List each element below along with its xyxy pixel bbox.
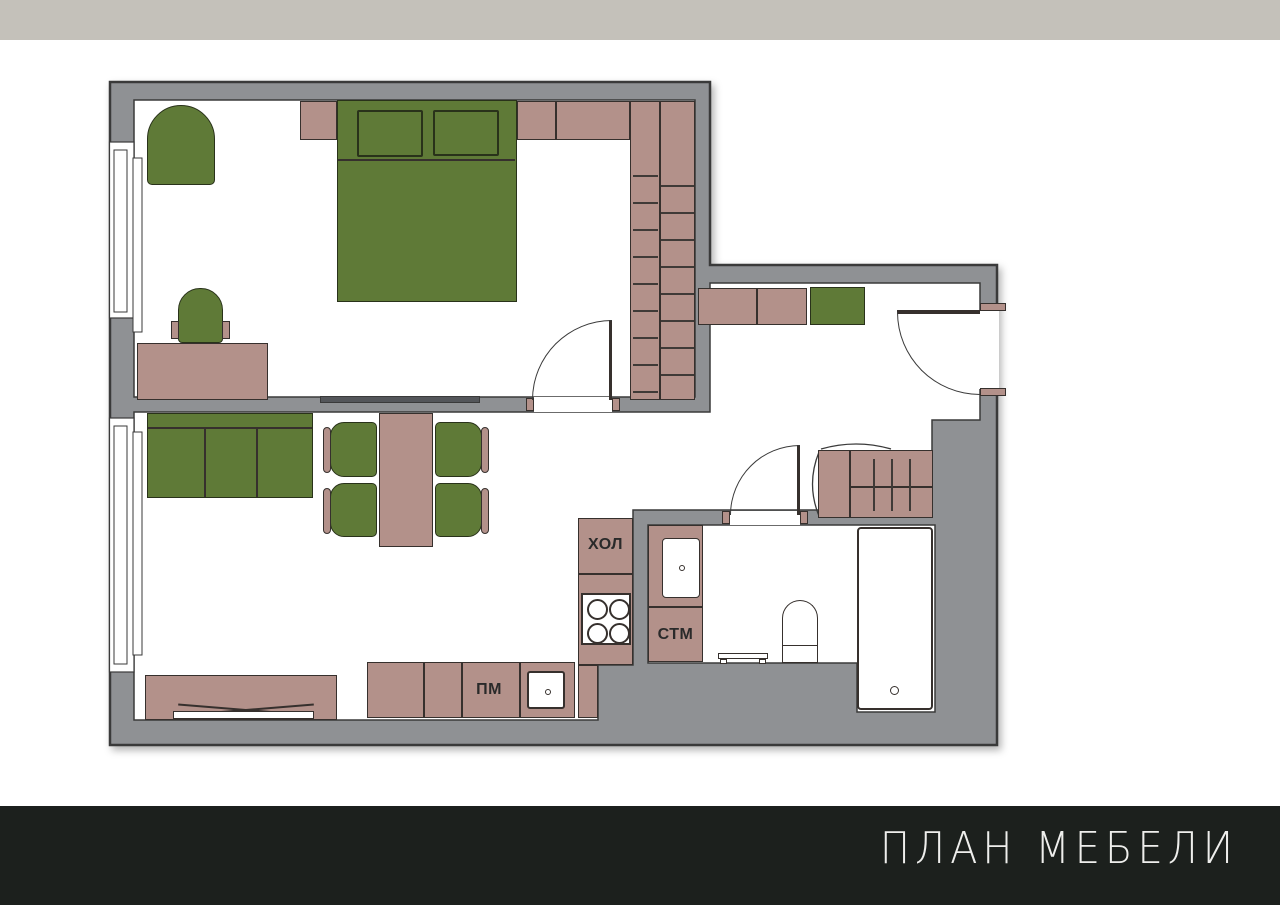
door-frame (612, 398, 620, 411)
hob (581, 593, 631, 645)
hall-bench (810, 287, 865, 325)
stool-foot (759, 659, 766, 664)
counter-divider (519, 663, 521, 717)
hall-wardrobe (818, 450, 933, 518)
washing-machine-text: СТМ (658, 626, 694, 644)
pillow (357, 110, 423, 157)
desk (137, 343, 268, 400)
desk-chair (178, 288, 223, 343)
dining-chair (330, 483, 377, 537)
wall-tv (320, 396, 480, 403)
chair-armrest (222, 321, 230, 339)
basin-dot (679, 565, 685, 571)
floor-plan: ПМ ХОЛ СТМ (0, 0, 1280, 905)
chair-backrest (323, 427, 331, 473)
console-divider (756, 289, 758, 324)
bedhead-cabinet (517, 101, 630, 140)
dining-chair (435, 422, 482, 477)
bedroom-wardrobe (630, 101, 695, 400)
window-bedroom (110, 142, 143, 332)
wardrobe-divider (849, 451, 851, 517)
sofa-back-line (148, 427, 312, 429)
chair-backrest (481, 488, 489, 534)
hob-burner (587, 623, 608, 644)
stool-foot (720, 659, 727, 664)
armchair (147, 105, 215, 185)
hob-burner (609, 599, 630, 620)
sofa-cushion-divider (256, 427, 258, 497)
faucet-dot (545, 689, 551, 695)
bathtub-drain (890, 686, 899, 695)
wardrobe-shelf-marks (633, 150, 658, 395)
fridge-text: ХОЛ (588, 536, 623, 554)
toilet-seat (782, 645, 818, 663)
title-bar: ПЛАН МЕБЕЛИ (0, 806, 1280, 905)
tv-stand (145, 675, 337, 720)
door-frame (722, 511, 730, 524)
sofa (147, 413, 313, 498)
fridge-label: ХОЛ (578, 518, 633, 572)
door-frame (980, 303, 1006, 311)
window-living (110, 418, 143, 672)
dishwasher-text: ПМ (476, 681, 502, 699)
pillow (433, 110, 499, 156)
cabinet-divider (555, 102, 557, 139)
dishwasher-label: ПМ (460, 662, 518, 718)
washbasin (662, 538, 700, 598)
hob-burner (609, 623, 630, 644)
washing-machine: СТМ (648, 607, 703, 662)
headboard-line (338, 159, 515, 161)
hob-burner (587, 599, 608, 620)
door-frame (800, 511, 808, 524)
hanger-marks (857, 459, 927, 511)
chair-backrest (323, 488, 331, 534)
hall-console (698, 288, 807, 325)
toilet (782, 600, 818, 648)
wardrobe-shelf-marks (661, 160, 694, 396)
bathtub (857, 527, 933, 710)
column-divider (579, 573, 632, 575)
kitchen-counter-stub (578, 665, 598, 718)
double-bed (337, 100, 517, 302)
dining-chair (435, 483, 482, 537)
chair-armrest (171, 321, 179, 339)
page-title: ПЛАН МЕБЕЛИ (880, 824, 1238, 874)
nightstand (300, 101, 337, 140)
door-frame (980, 388, 1006, 396)
entrance-door-gap (979, 310, 999, 389)
dining-chair (330, 422, 377, 477)
chair-backrest (481, 427, 489, 473)
kitchen-sink (527, 671, 565, 709)
tv-screen (173, 711, 314, 719)
dining-table (379, 413, 433, 547)
sofa-cushion-divider (204, 427, 206, 497)
counter-divider (423, 663, 425, 717)
